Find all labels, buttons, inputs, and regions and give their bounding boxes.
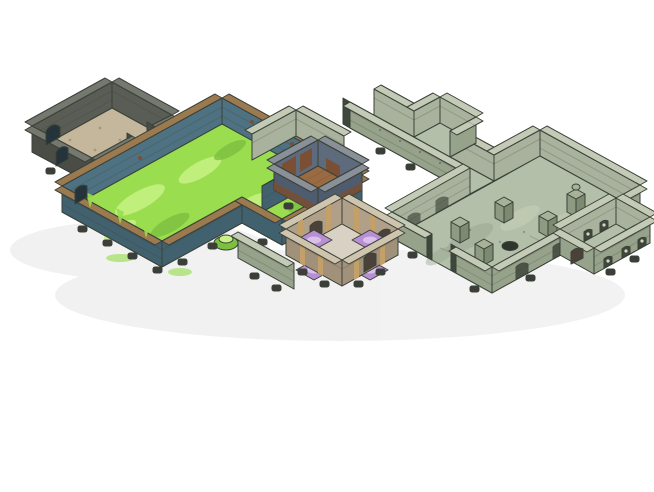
sconce [250, 120, 254, 124]
foot [272, 285, 281, 291]
foot [153, 267, 162, 273]
pilaster [326, 204, 331, 233]
rivet [379, 129, 381, 131]
foot [298, 269, 307, 275]
foot [208, 243, 217, 249]
foot [606, 269, 615, 275]
foot [178, 259, 187, 265]
foot [406, 164, 415, 170]
product-render-canvas [0, 0, 654, 492]
speckle [119, 139, 122, 142]
foot [78, 226, 87, 232]
dungeon-scene [10, 78, 654, 341]
foot [284, 203, 293, 209]
skull [586, 232, 589, 235]
foot [408, 252, 417, 258]
foot [376, 269, 385, 275]
niche-arch [638, 237, 646, 249]
foot [320, 281, 329, 287]
foot [128, 253, 137, 259]
dungeon-terrain-render [0, 0, 654, 492]
rivet [439, 162, 441, 164]
pilaster [354, 205, 359, 234]
skull [606, 259, 609, 262]
pillar [495, 197, 513, 223]
speckle [94, 149, 97, 152]
skull [624, 249, 627, 252]
foot [46, 168, 55, 174]
foot [526, 275, 535, 281]
sconce [138, 156, 142, 160]
skull [602, 223, 605, 226]
pillar [451, 217, 469, 243]
foot [354, 281, 363, 287]
foot [470, 286, 479, 292]
foot [376, 148, 385, 154]
statue-head [572, 184, 580, 190]
speckle [499, 241, 501, 243]
speckle [69, 139, 72, 142]
foot [630, 256, 639, 262]
rivet [419, 151, 421, 153]
floor-hole [502, 242, 518, 251]
foot [103, 240, 112, 246]
skull [640, 239, 643, 242]
rivet [399, 140, 401, 142]
speckle [99, 127, 102, 130]
speckle [523, 231, 525, 233]
foot [250, 273, 259, 279]
splash [168, 268, 192, 276]
